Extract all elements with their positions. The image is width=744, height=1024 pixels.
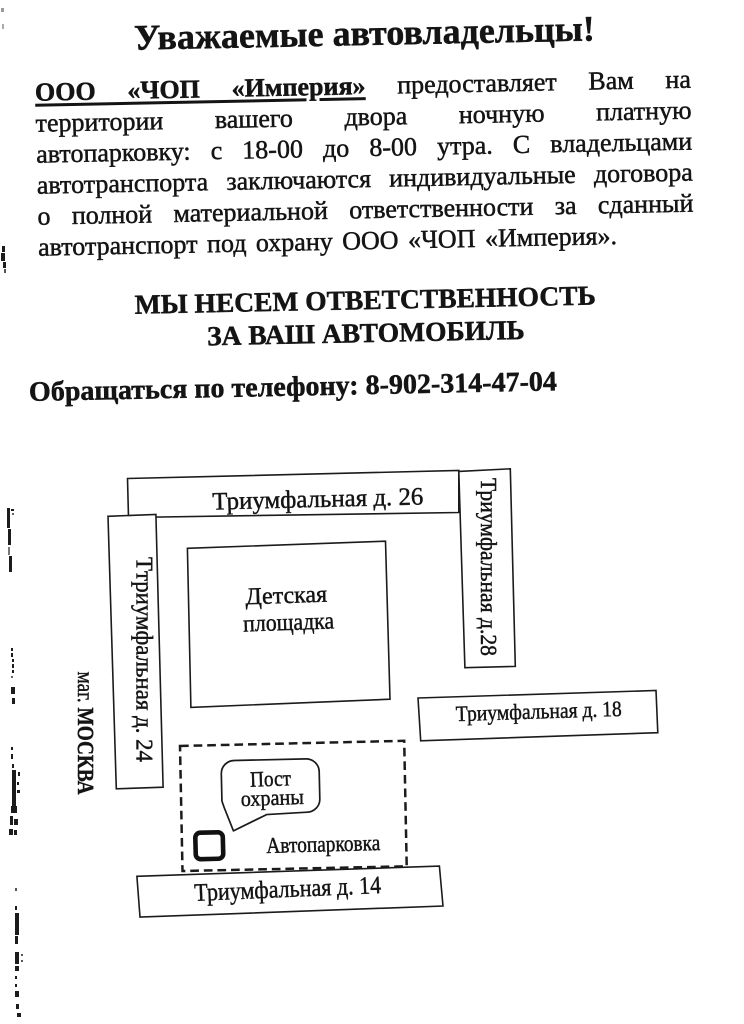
svg-text:Ттриумфальная д. 24: Ттриумфальная д. 24 (131, 557, 157, 762)
svg-text:Автопарковка: Автопарковка (266, 830, 381, 858)
svg-text:Триумфальная д.28: Триумфальная д.28 (476, 478, 501, 656)
svg-text:площадка: площадка (243, 608, 335, 637)
svg-text:Детская: Детская (245, 582, 328, 611)
svg-text:Триумфальная д. 26: Триумфальная д. 26 (212, 483, 424, 515)
svg-text:маг. МОСКВА: маг. МОСКВА (73, 672, 98, 795)
svg-text:Триумфальная д. 18: Триумфальная д. 18 (455, 696, 622, 726)
svg-text:охраны: охраны (240, 784, 304, 811)
